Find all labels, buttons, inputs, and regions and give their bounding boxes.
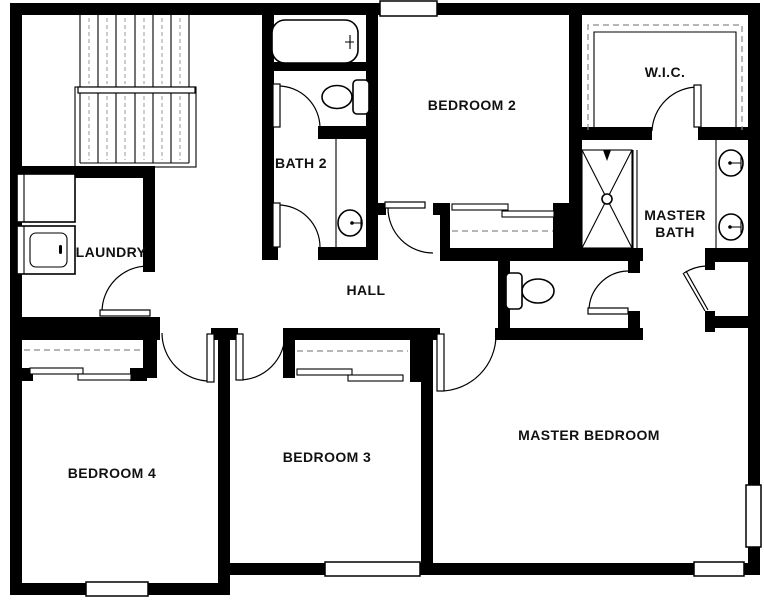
stairs [75, 15, 196, 167]
linen-closet-door [683, 266, 708, 311]
window [380, 1, 437, 16]
wall [421, 328, 433, 575]
sliding-door-panel [30, 368, 83, 374]
room-label-master-bath-1: MASTER [644, 207, 706, 223]
window [746, 485, 761, 547]
sliding-door-panel [502, 211, 554, 217]
stair-rail [78, 87, 195, 93]
room-label-hall: HALL [347, 282, 386, 298]
sink-icon [719, 150, 743, 176]
toilet-tank-icon [506, 273, 522, 309]
wall [10, 317, 160, 340]
stair-treads-upper [80, 15, 189, 87]
room-label-bedroom4: BEDROOM 4 [68, 465, 156, 481]
wall [218, 328, 230, 583]
bedroom4-closet [24, 350, 141, 380]
wall [218, 563, 760, 575]
wic-door [652, 85, 701, 131]
bedroom3-door [236, 334, 285, 380]
sliding-door-panel [452, 204, 508, 210]
wall [705, 248, 750, 262]
room-labels: LAUNDRY BATH 2 BEDROOM 2 W.I.C. MASTER B… [68, 64, 706, 481]
sliding-door-panel [297, 369, 352, 375]
sink-icon [719, 214, 743, 240]
room-label-wic: W.I.C. [645, 64, 686, 80]
wall [628, 252, 640, 273]
wall [553, 203, 569, 248]
room-label-bath2: BATH 2 [275, 155, 327, 171]
showerhead-icon [603, 150, 611, 161]
laundry-door [100, 266, 150, 316]
dryer-latch [59, 245, 62, 254]
wall [130, 368, 147, 381]
water-closet-door [588, 271, 628, 314]
sliding-door-panel [348, 375, 403, 381]
wall [495, 328, 643, 340]
room-label-bedroom2: BEDROOM 2 [428, 97, 516, 113]
wall [262, 247, 278, 260]
stair-treads-lower [80, 93, 189, 163]
floor-plan-svg: LAUNDRY BATH 2 BEDROOM 2 W.I.C. MASTER B… [0, 0, 764, 600]
wall [705, 316, 750, 328]
bedroom4-door [162, 333, 214, 382]
toilet-tank-icon [353, 80, 369, 114]
floor-plan: LAUNDRY BATH 2 BEDROOM 2 W.I.C. MASTER B… [0, 0, 764, 600]
window [86, 582, 148, 596]
wc-fixtures [506, 273, 554, 309]
wall [318, 126, 378, 139]
bedroom2-door [385, 202, 433, 253]
toilet-bowl-icon [522, 279, 554, 303]
wall [569, 127, 652, 140]
wall [440, 248, 643, 261]
room-label-master-bath-2: BATH [655, 224, 694, 240]
bath2-entry-door [273, 203, 320, 247]
wall [698, 127, 748, 140]
room-label-master-bedroom: MASTER BEDROOM [518, 427, 660, 443]
sliding-door-panel [78, 374, 131, 380]
wall [318, 247, 378, 260]
master-bedroom-door [437, 334, 496, 391]
washer-icon [17, 174, 75, 222]
shower-icon [582, 150, 637, 248]
bedroom3-closet [297, 351, 408, 381]
room-label-laundry: LAUNDRY [76, 244, 147, 260]
laundry-room [17, 174, 75, 274]
room-label-bedroom3: BEDROOM 3 [283, 449, 371, 465]
wall [10, 3, 22, 595]
bedroom2-closet [452, 204, 554, 231]
wall [628, 311, 640, 340]
bath2-inner-door [273, 84, 320, 128]
closet-shelf-line [594, 32, 736, 130]
toilet-bowl-icon [322, 86, 352, 109]
shower-glass [633, 150, 637, 248]
window [325, 562, 420, 576]
window [694, 562, 744, 576]
